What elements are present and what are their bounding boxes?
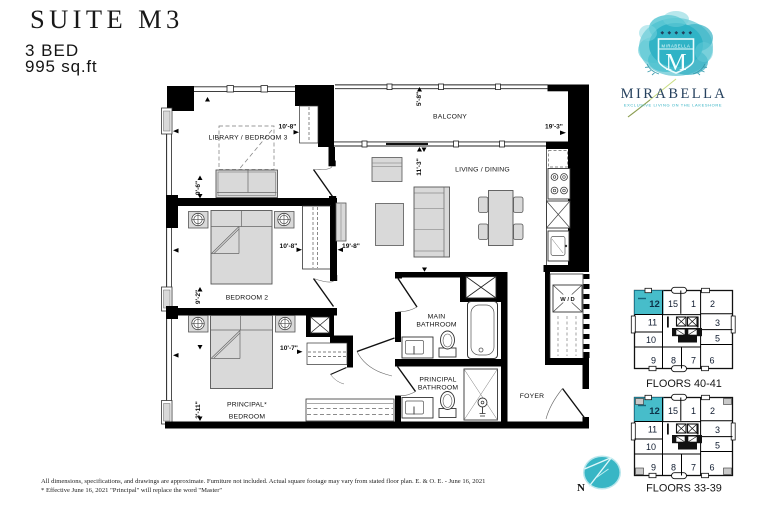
- svg-text:11'-3": 11'-3": [416, 158, 423, 176]
- svg-text:EXCLUSIVE LIVING ON THE LAKESH: EXCLUSIVE LIVING ON THE LAKESHORE: [624, 103, 722, 108]
- svg-text:19'-3": 19'-3": [545, 124, 563, 131]
- svg-text:PRINCIPAL*: PRINCIPAL*: [227, 402, 267, 409]
- svg-text:N: N: [577, 482, 585, 494]
- svg-text:11: 11: [648, 318, 657, 328]
- svg-text:8: 8: [671, 356, 676, 366]
- svg-text:995 sq.ft: 995 sq.ft: [25, 57, 97, 76]
- svg-text:* Effective June 16, 2021 "Pri: * Effective June 16, 2021 "Principal" wi…: [41, 487, 222, 494]
- svg-text:10: 10: [646, 335, 656, 345]
- svg-text:All dimensions, specifications: All dimensions, specifications, and draw…: [41, 478, 485, 485]
- svg-text:3'-11": 3'-11": [195, 401, 202, 419]
- svg-text:12: 12: [649, 299, 660, 310]
- svg-text:BATHROOM: BATHROOM: [418, 385, 459, 392]
- svg-text:FOYER: FOYER: [520, 393, 544, 400]
- svg-text:1: 1: [691, 299, 696, 309]
- svg-text:BEDROOM 2: BEDROOM 2: [226, 295, 269, 302]
- svg-text:2: 2: [710, 299, 715, 309]
- svg-text:5'-8": 5'-8": [416, 92, 423, 106]
- svg-text:10'-8": 10'-8": [279, 124, 297, 131]
- svg-text:9'-2": 9'-2": [195, 290, 202, 304]
- svg-text:PRINCIPAL: PRINCIPAL: [419, 377, 456, 384]
- svg-text:10'-7": 10'-7": [280, 345, 298, 352]
- svg-text:FLOORS 40-41: FLOORS 40-41: [646, 378, 722, 390]
- svg-text:10'-8": 10'-8": [280, 243, 298, 250]
- svg-text:6: 6: [709, 356, 714, 366]
- svg-text:FLOORS 33-39: FLOORS 33-39: [646, 483, 722, 495]
- svg-text:BATHROOM: BATHROOM: [416, 322, 457, 329]
- svg-text:LIBRARY / BEDROOM 3: LIBRARY / BEDROOM 3: [208, 135, 287, 142]
- svg-text:LIVING / DINING: LIVING / DINING: [455, 167, 510, 174]
- svg-text:BALCONY: BALCONY: [433, 114, 467, 121]
- svg-text:MAIN: MAIN: [428, 314, 446, 321]
- svg-text:15: 15: [668, 299, 678, 309]
- svg-text:3: 3: [715, 318, 720, 328]
- svg-text:5: 5: [715, 334, 720, 344]
- svg-text:7: 7: [691, 356, 696, 366]
- svg-text:MIRABELLA: MIRABELLA: [621, 86, 728, 102]
- svg-text:W / D: W / D: [560, 297, 575, 303]
- svg-text:19'-8": 19'-8": [342, 243, 360, 250]
- svg-text:9: 9: [651, 356, 656, 366]
- svg-text:9'-6": 9'-6": [195, 181, 202, 195]
- svg-text:SUITE M3: SUITE M3: [30, 4, 184, 34]
- svg-text:M: M: [665, 50, 686, 76]
- svg-text:MIRABELLA: MIRABELLA: [662, 44, 691, 49]
- svg-text:BEDROOM: BEDROOM: [229, 414, 266, 421]
